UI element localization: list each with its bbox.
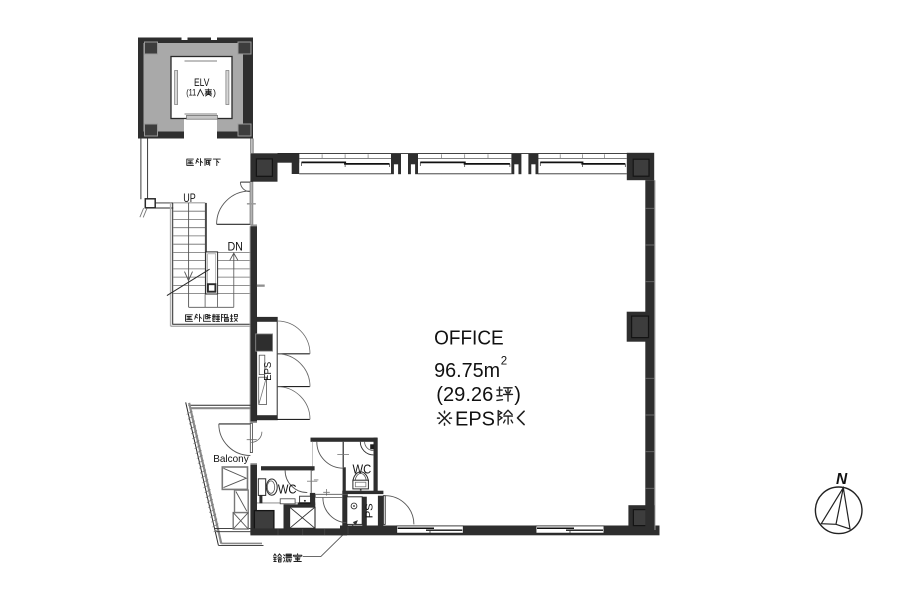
svg-text:UP: UP	[183, 193, 196, 205]
svg-text:WC: WC	[278, 482, 297, 497]
svg-text:DN: DN	[227, 242, 243, 254]
svg-text:ELV: ELV	[194, 77, 210, 89]
svg-text:): )	[213, 88, 216, 98]
svg-text:2: 2	[501, 356, 507, 368]
svg-text:96.75m: 96.75m	[434, 359, 500, 382]
svg-text:PS: PS	[364, 503, 375, 518]
svg-text:OFFICE: OFFICE	[434, 326, 504, 349]
svg-text:N: N	[836, 471, 848, 488]
svg-text:(29.26: (29.26	[436, 384, 493, 406]
svg-text:EPS: EPS	[263, 361, 274, 380]
svg-text:EPS: EPS	[455, 409, 495, 431]
svg-text:): )	[514, 384, 521, 406]
svg-text:(11: (11	[186, 88, 196, 98]
